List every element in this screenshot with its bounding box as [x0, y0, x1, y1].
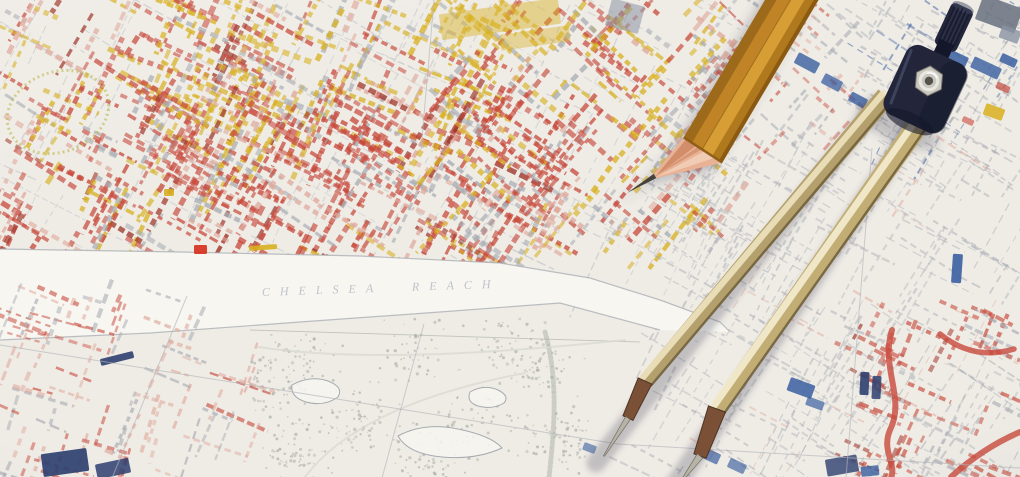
map-patch: [861, 465, 880, 477]
photograph-of-map-with-drafting-tools: CHELSEA REACH: [0, 0, 1020, 477]
map-patch: [164, 189, 174, 196]
map-patch: [194, 245, 207, 254]
map-patch: [871, 376, 881, 399]
scene-canvas: CHELSEA REACH: [0, 0, 1020, 477]
map-patch: [859, 372, 869, 395]
map-patch: [951, 254, 963, 284]
